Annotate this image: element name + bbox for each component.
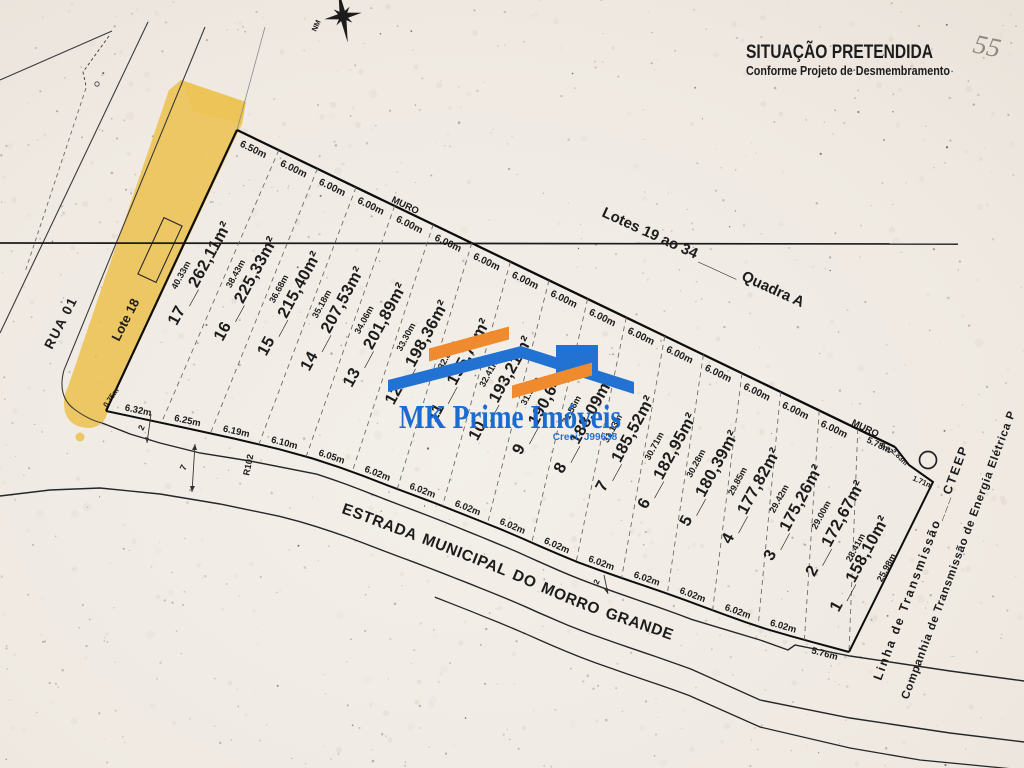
svg-text:MK Prime Imóveis: MK Prime Imóveis: [399, 399, 621, 436]
svg-text:SITUAÇÃO PRETENDIDA: SITUAÇÃO PRETENDIDA: [746, 40, 933, 63]
svg-text:Conforme Projeto de Desmembram: Conforme Projeto de Desmembramento: [746, 63, 950, 78]
svg-text:Creci: J99638: Creci: J99638: [553, 432, 618, 443]
